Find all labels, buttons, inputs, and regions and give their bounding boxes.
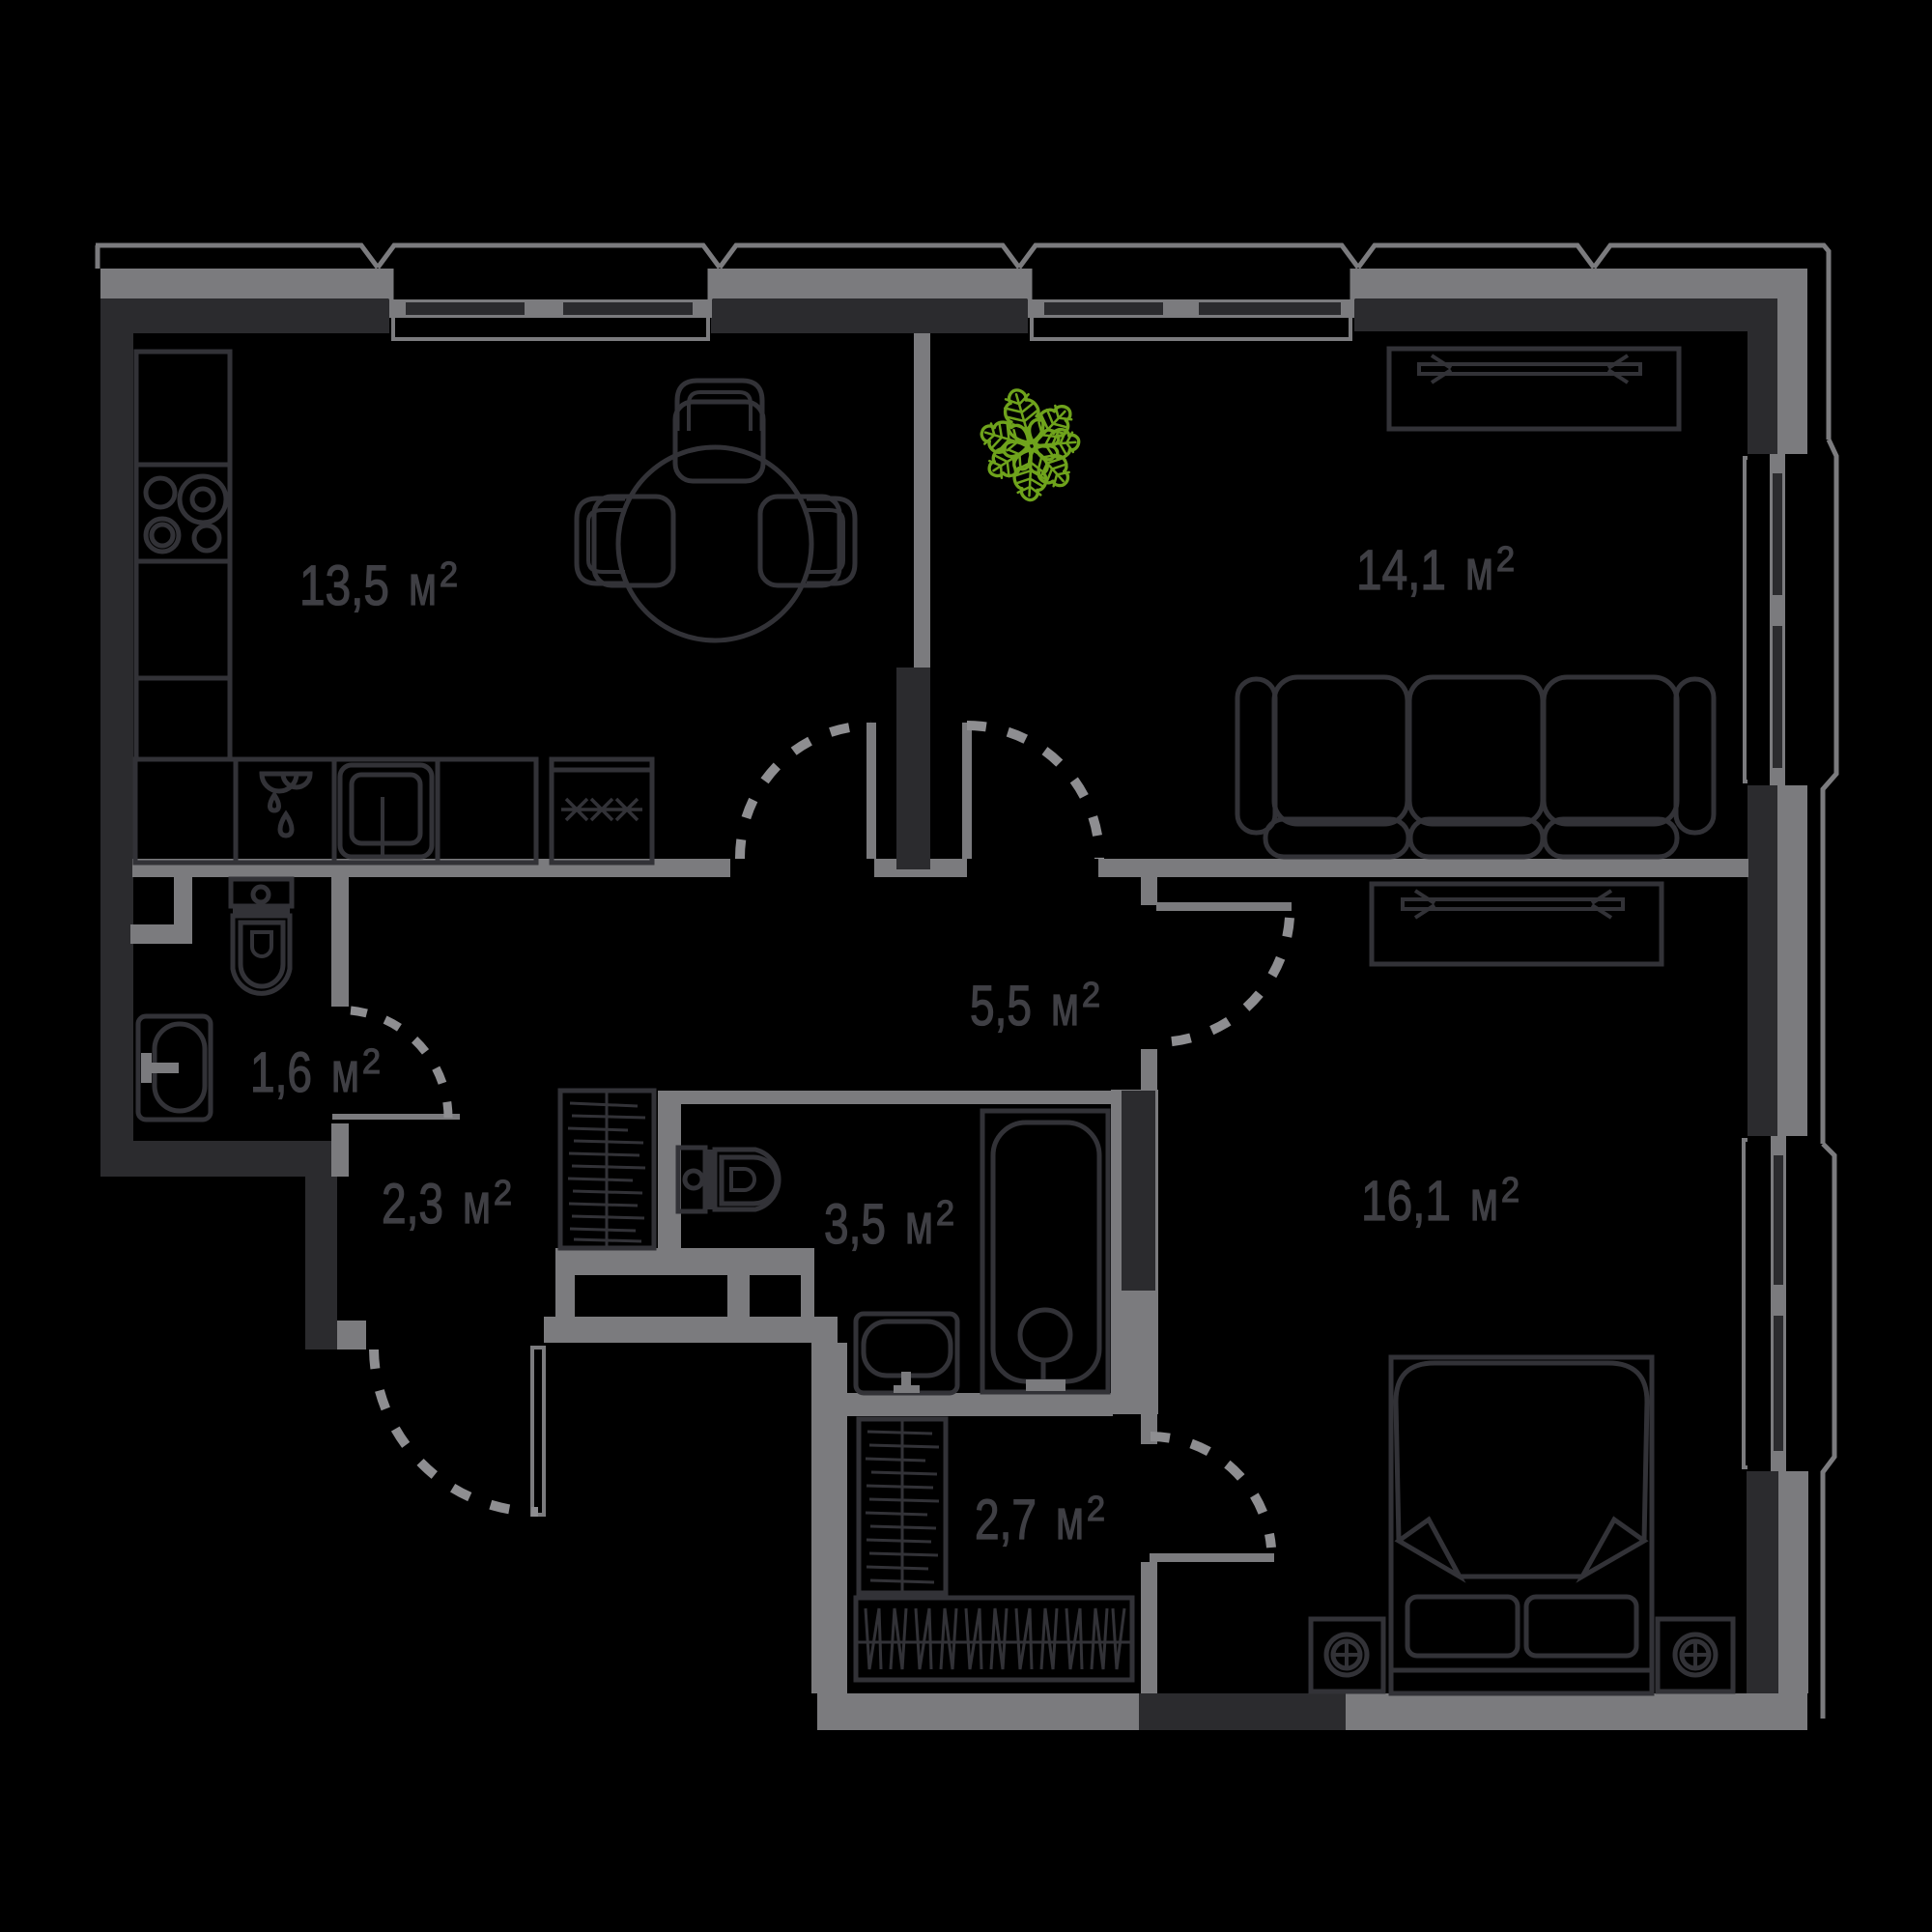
- svg-text:2: 2: [440, 554, 458, 594]
- svg-text:2: 2: [1082, 975, 1100, 1014]
- svg-text:м: м: [409, 554, 437, 617]
- svg-text:м: м: [1470, 1170, 1498, 1233]
- svg-text:3,5: 3,5: [824, 1193, 886, 1256]
- svg-text:м: м: [1051, 975, 1079, 1037]
- svg-text:м: м: [1056, 1489, 1084, 1551]
- svg-text:2: 2: [362, 1041, 381, 1081]
- svg-text:2: 2: [1496, 539, 1515, 579]
- svg-text:2,7: 2,7: [975, 1489, 1037, 1551]
- svg-text:5,5: 5,5: [970, 975, 1032, 1037]
- svg-text:м: м: [463, 1173, 491, 1236]
- svg-text:2,3: 2,3: [382, 1173, 443, 1236]
- svg-text:16,1: 16,1: [1361, 1170, 1451, 1233]
- svg-text:2: 2: [494, 1173, 512, 1212]
- svg-text:2: 2: [1087, 1489, 1105, 1528]
- svg-text:1,6: 1,6: [250, 1041, 312, 1104]
- svg-text:2: 2: [936, 1193, 954, 1233]
- svg-text:м: м: [1465, 539, 1493, 602]
- svg-text:13,5: 13,5: [299, 554, 389, 617]
- svg-text:м: м: [905, 1193, 933, 1256]
- svg-text:м: м: [331, 1041, 359, 1104]
- svg-text:14,1: 14,1: [1356, 539, 1446, 602]
- svg-text:2: 2: [1501, 1170, 1520, 1209]
